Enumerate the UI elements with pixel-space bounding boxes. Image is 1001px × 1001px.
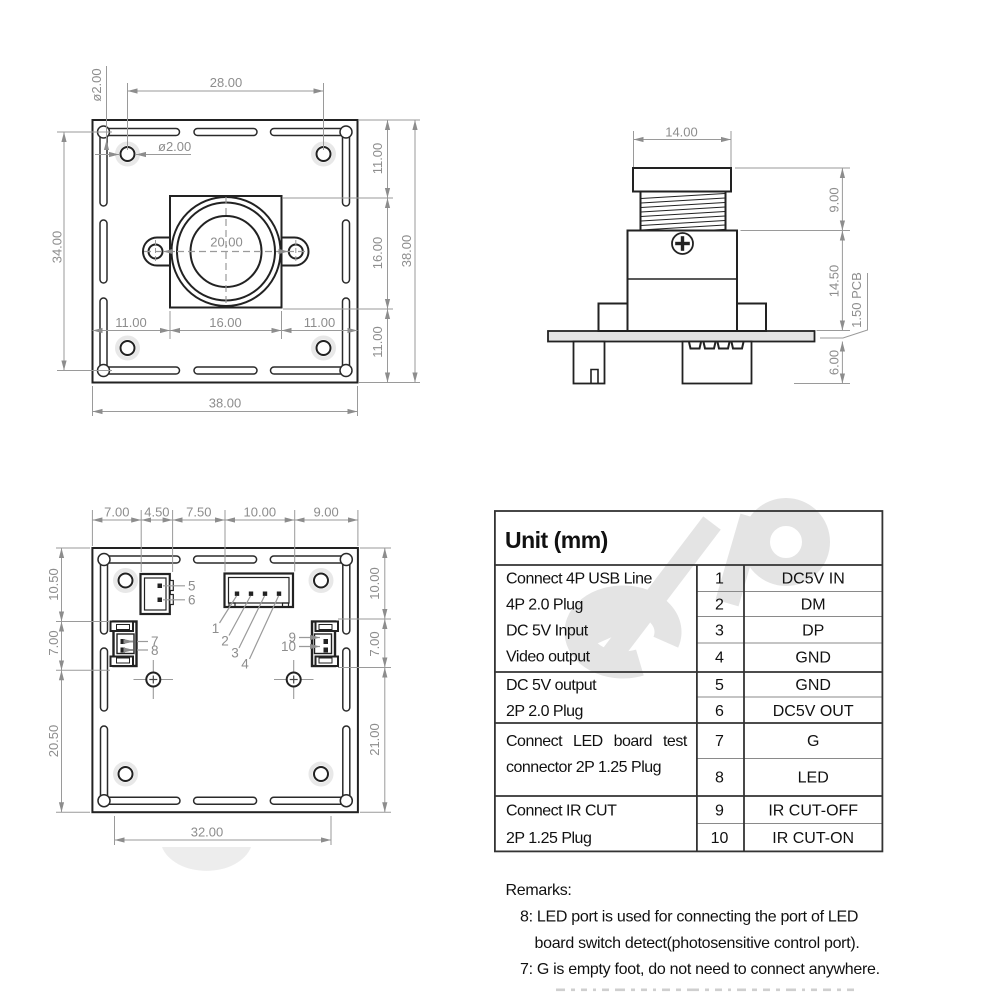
svg-text:7.00: 7.00 bbox=[46, 630, 61, 655]
svg-text:2P 1.25 Plug: 2P 1.25 Plug bbox=[506, 830, 591, 847]
svg-text:21.00: 21.00 bbox=[367, 723, 382, 756]
svg-text:6: 6 bbox=[188, 593, 196, 608]
svg-text:DC 5V output: DC 5V output bbox=[506, 677, 597, 694]
svg-text:11.00: 11.00 bbox=[370, 143, 385, 175]
svg-text:16.00: 16.00 bbox=[370, 237, 385, 270]
svg-text:7: 7 bbox=[715, 733, 724, 750]
svg-text:8: 8 bbox=[715, 770, 724, 787]
svg-text:1: 1 bbox=[715, 571, 724, 588]
svg-text:Connect LED board test: Connect LED board test bbox=[506, 733, 688, 750]
svg-text:1: 1 bbox=[212, 621, 220, 636]
svg-text:28.00: 28.00 bbox=[210, 75, 243, 90]
svg-text:ø2.00: ø2.00 bbox=[158, 139, 191, 154]
svg-text:LED: LED bbox=[798, 770, 829, 787]
svg-text:14.00: 14.00 bbox=[665, 125, 698, 140]
svg-text:GND: GND bbox=[795, 677, 831, 694]
svg-text:14.50: 14.50 bbox=[827, 265, 842, 298]
svg-text:2: 2 bbox=[715, 597, 724, 614]
svg-text:2P 2.0 Plug: 2P 2.0 Plug bbox=[506, 703, 583, 720]
svg-text:3: 3 bbox=[231, 646, 239, 661]
svg-text:4: 4 bbox=[715, 650, 724, 667]
svg-text:32.00: 32.00 bbox=[191, 825, 224, 840]
svg-text:7: G is empty foot, do not nee: 7: G is empty foot, do not need to conne… bbox=[520, 961, 880, 978]
svg-text:Connect 4P USB Line: Connect 4P USB Line bbox=[506, 571, 652, 588]
svg-text:7.00: 7.00 bbox=[367, 631, 382, 656]
svg-text:4.50: 4.50 bbox=[144, 505, 169, 520]
svg-text:8: LED port is used for connec: 8: LED port is used for connecting the p… bbox=[520, 909, 858, 926]
svg-text:10.50: 10.50 bbox=[46, 568, 61, 601]
svg-text:4P 2.0 Plug: 4P 2.0 Plug bbox=[506, 597, 583, 614]
svg-text:DM: DM bbox=[801, 597, 826, 614]
svg-text:DC5V IN: DC5V IN bbox=[782, 571, 845, 588]
svg-text:DC5V OUT: DC5V OUT bbox=[773, 703, 854, 720]
svg-text:IR CUT-ON: IR CUT-ON bbox=[772, 830, 854, 847]
svg-text:GND: GND bbox=[795, 650, 831, 667]
svg-text:16.00: 16.00 bbox=[209, 315, 242, 330]
svg-text:connector 2P 1.25 Plug: connector 2P 1.25 Plug bbox=[506, 759, 661, 776]
svg-text:DP: DP bbox=[802, 623, 824, 640]
svg-text:IR CUT-OFF: IR CUT-OFF bbox=[768, 803, 858, 820]
svg-text:5: 5 bbox=[188, 579, 196, 594]
svg-text:20.50: 20.50 bbox=[46, 725, 61, 758]
svg-text:10: 10 bbox=[711, 830, 729, 847]
svg-text:9: 9 bbox=[715, 803, 724, 820]
svg-text:Unit (mm): Unit (mm) bbox=[505, 527, 608, 553]
svg-text:9.00: 9.00 bbox=[313, 505, 338, 520]
svg-text:DC 5V Input: DC 5V Input bbox=[506, 623, 589, 640]
svg-text:4: 4 bbox=[241, 657, 249, 672]
svg-text:6.00: 6.00 bbox=[827, 350, 842, 375]
svg-text:10.00: 10.00 bbox=[367, 567, 382, 600]
svg-text:10: 10 bbox=[281, 639, 296, 654]
svg-text:G: G bbox=[807, 733, 819, 750]
svg-text:11.00: 11.00 bbox=[304, 315, 336, 330]
svg-text:Connect IR CUT: Connect IR CUT bbox=[506, 803, 617, 820]
svg-text:Remarks:: Remarks: bbox=[506, 882, 572, 899]
svg-text:board switch detect(photosensi: board switch detect(photosensitive contr… bbox=[535, 935, 860, 952]
svg-text:11.00: 11.00 bbox=[370, 326, 385, 358]
svg-text:9.00: 9.00 bbox=[827, 187, 842, 212]
svg-text:34.00: 34.00 bbox=[50, 231, 65, 264]
svg-text:6: 6 bbox=[715, 703, 724, 720]
svg-text:38.00: 38.00 bbox=[209, 396, 242, 411]
svg-text:2: 2 bbox=[221, 634, 229, 649]
svg-text:20.00: 20.00 bbox=[210, 235, 243, 250]
svg-text:5: 5 bbox=[715, 677, 724, 694]
svg-text:11.00: 11.00 bbox=[115, 315, 147, 330]
svg-text:7.50: 7.50 bbox=[186, 505, 211, 520]
svg-text:8: 8 bbox=[151, 643, 159, 658]
svg-text:Video output: Video output bbox=[506, 649, 591, 666]
svg-text:10.00: 10.00 bbox=[244, 505, 277, 520]
svg-text:3: 3 bbox=[715, 623, 724, 640]
svg-text:38.00: 38.00 bbox=[399, 235, 414, 268]
svg-text:7.00: 7.00 bbox=[104, 505, 129, 520]
svg-text:ø2.00: ø2.00 bbox=[89, 68, 104, 101]
svg-text:1.50 PCB: 1.50 PCB bbox=[849, 272, 864, 328]
